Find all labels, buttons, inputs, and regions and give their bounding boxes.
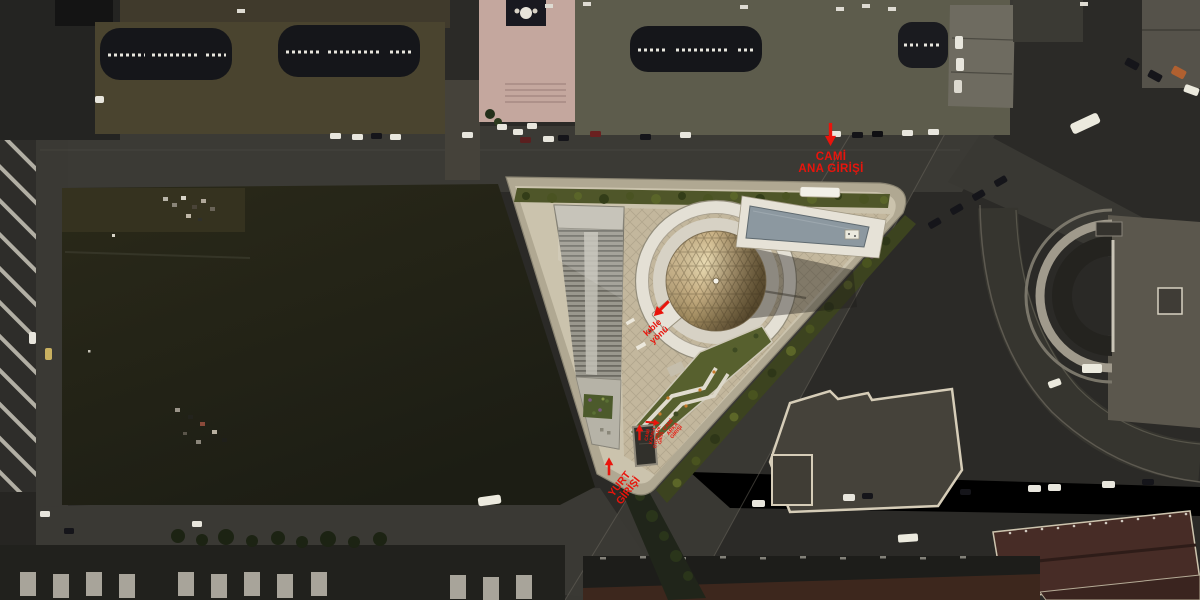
- aerial-map-view: CAMİ ANA GİRİŞİ kıble yönü CAMİ KAPALI O…: [0, 0, 1200, 600]
- annotation-dormitory-entrance: YURT GİRİŞİ: [588, 450, 660, 514]
- arrow-up-icon: [604, 454, 614, 478]
- monument-plaza: [479, 0, 575, 126]
- annotation-label: CAMİ ANA GİRİŞİ: [788, 151, 874, 175]
- arrow-down-icon: [824, 122, 837, 148]
- arrow-right-icon: [644, 418, 662, 427]
- entrance-canopy: [800, 186, 840, 197]
- annotation-qibla-direction: kıble yönü: [628, 298, 692, 360]
- annotation-label: CAMİ ARKA GİRİŞİ: [656, 411, 690, 448]
- dome-oculus: [713, 278, 719, 284]
- roof-garden: [583, 394, 613, 419]
- annotation-mosque-main-entrance: CAMİ ANA GİRİŞİ: [788, 122, 874, 184]
- fountain: [845, 230, 859, 239]
